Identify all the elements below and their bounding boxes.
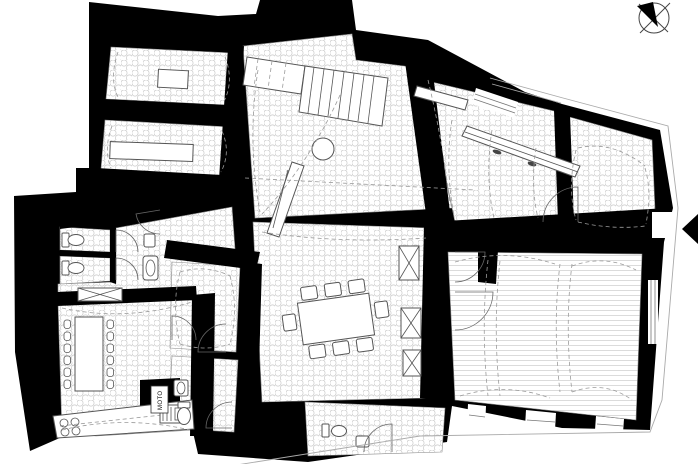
toilet-wc2: [62, 261, 84, 275]
shaft-box: [78, 288, 122, 301]
shaft-box: [401, 308, 421, 338]
door-opening-right: [652, 212, 672, 238]
entrance-arrow-icon: [682, 214, 698, 244]
north-arrow-icon: [637, 2, 670, 33]
utility-box: MOTO: [151, 386, 168, 413]
big-right-room: [448, 252, 642, 420]
table-top-left-room: [158, 69, 189, 89]
shaft-box: [403, 350, 421, 376]
sideboard-room-2: [110, 142, 194, 162]
toilet-wc1: [62, 233, 84, 247]
floor-plan-canvas: MOTO: [0, 0, 700, 464]
floor-plan-drawing: MOTO: [0, 0, 700, 464]
window-right-wall: [648, 280, 658, 344]
utility-box-label: MOTO: [158, 391, 164, 411]
shaft-box: [399, 246, 419, 280]
round-table: [312, 138, 334, 160]
